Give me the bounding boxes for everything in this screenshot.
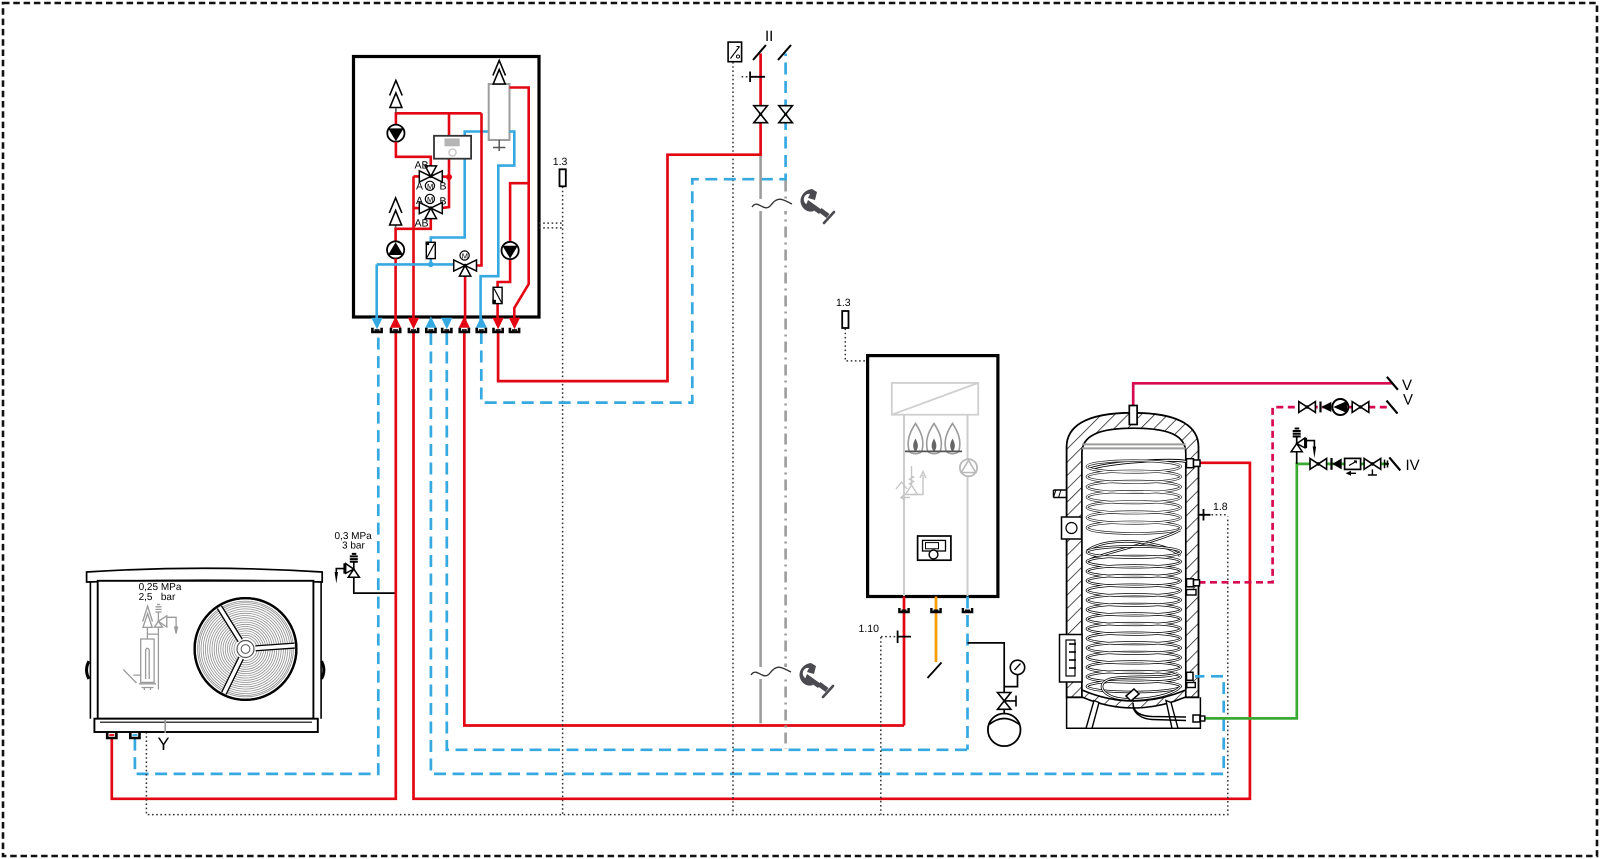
svg-text:B: B [440, 180, 447, 192]
svg-text:1.3: 1.3 [553, 156, 568, 168]
svg-text:A: A [416, 181, 423, 193]
svg-text:M: M [462, 252, 468, 261]
svg-text:II: II [765, 28, 773, 45]
svg-text:Y: Y [158, 734, 170, 754]
svg-text:V: V [1403, 392, 1413, 409]
svg-text:AB: AB [415, 160, 429, 172]
svg-text:1.3: 1.3 [836, 297, 851, 309]
svg-text:M: M [427, 182, 433, 191]
svg-text:2,5 bar: 2,5 bar [139, 592, 176, 603]
svg-text:M: M [427, 195, 433, 204]
svg-text:1.10: 1.10 [859, 623, 880, 635]
svg-text:1.8: 1.8 [1213, 501, 1228, 513]
svg-text:3 bar: 3 bar [342, 540, 365, 551]
svg-text:IV: IV [1406, 457, 1420, 474]
